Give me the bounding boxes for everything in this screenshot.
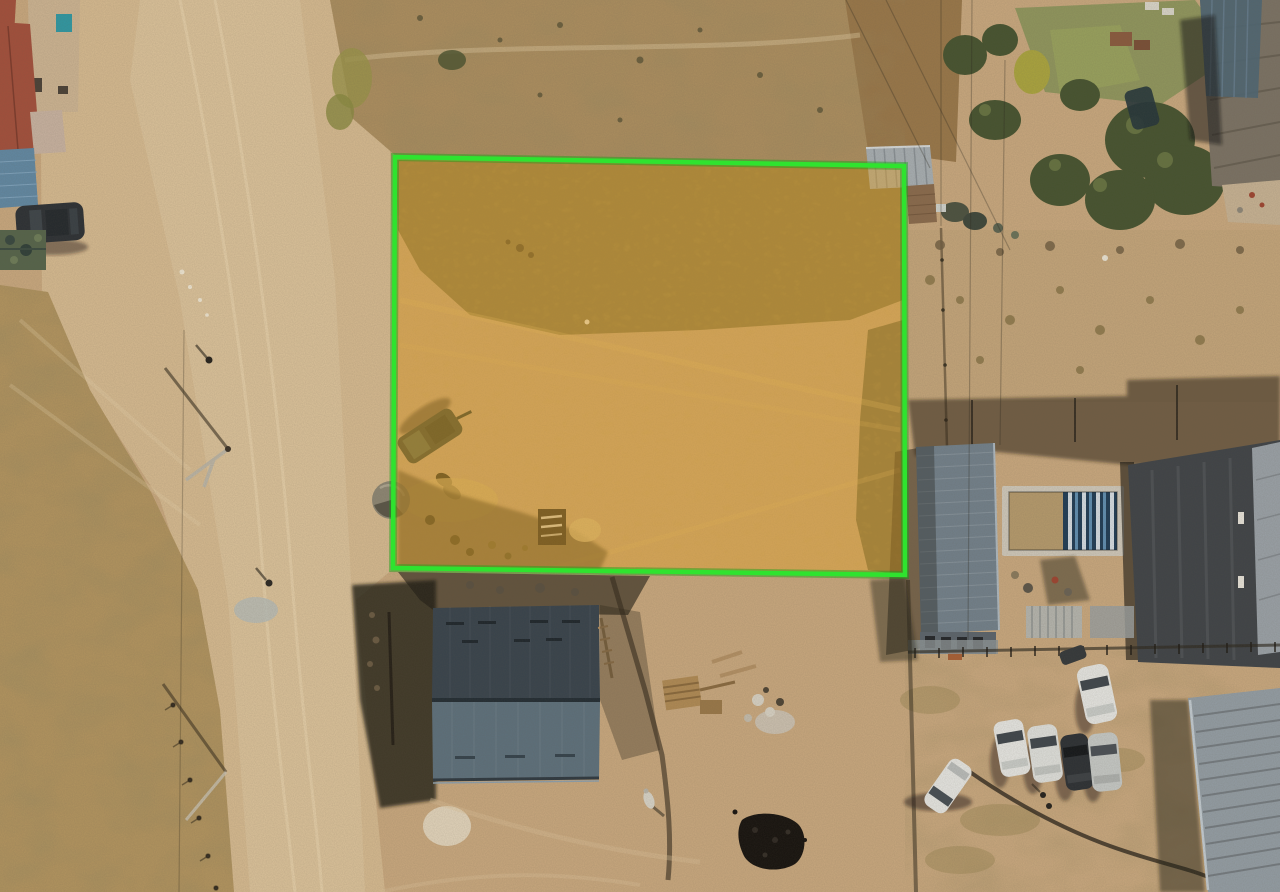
aerial-photo: [0, 0, 1280, 892]
plot-annotation: [393, 157, 905, 575]
plot-fill-overlay: [393, 157, 905, 575]
aerial-photo-canvas: [0, 0, 1280, 892]
